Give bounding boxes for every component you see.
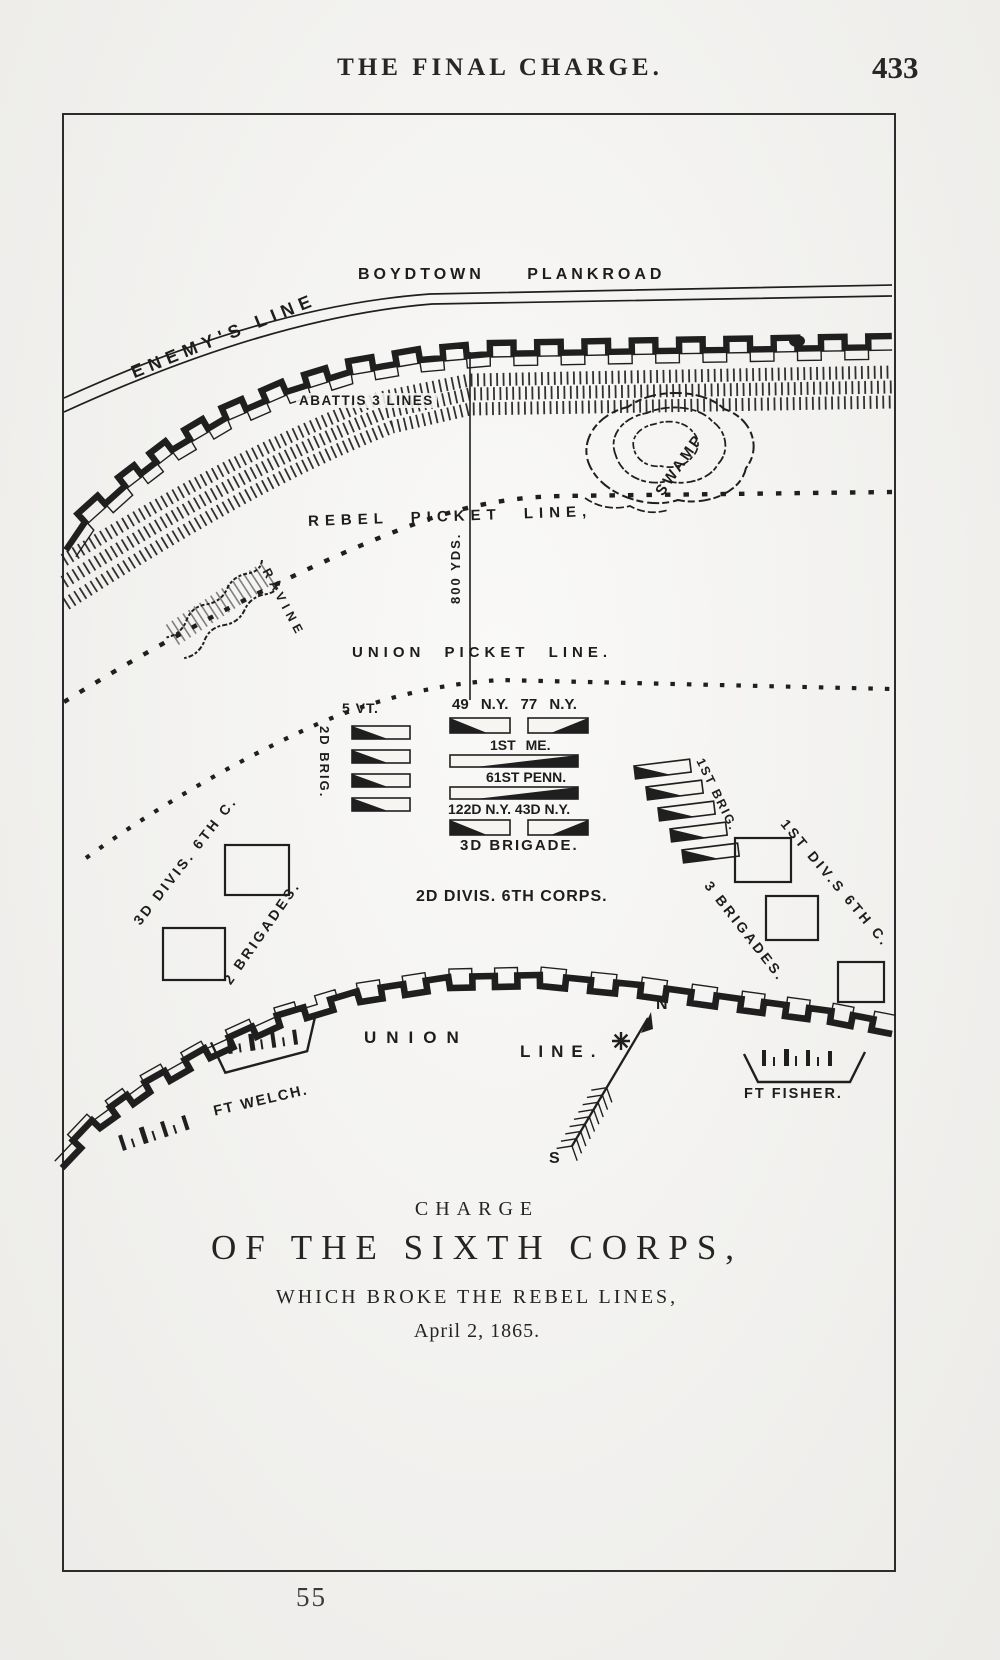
fort-fisher-symbol [744,1049,865,1082]
fort-welch-symbol-tick [260,1039,263,1049]
map-title-line4: April 2, 1865. [62,1320,892,1343]
union-picket-line-label: UNION PICKET LINE. [352,644,612,661]
union-line-label-union: UNION [364,1028,469,1048]
plate-number: 55 [296,1582,327,1613]
map-title-line3: WHICH BROKE THE REBEL LINES, [62,1286,892,1309]
unit-bar [634,759,691,779]
unit-label-61st-penn: 61ST PENN. [486,769,566,785]
battery-symbol-tick [160,1121,169,1137]
unit-bar [646,780,703,800]
compass-feather [581,1131,586,1146]
battery-symbol [118,1113,190,1151]
unit-label-2d-division: 2D DIVIS. 6TH CORPS. [416,888,608,906]
brigade-square-1 [225,845,289,895]
unit-bar [352,726,410,739]
battery-symbol-tick [118,1134,127,1150]
unit-bar [450,787,578,799]
unit-bar [352,774,410,787]
fort-fisher-symbol-tick [773,1057,775,1066]
compass-feather [557,1146,572,1148]
brigade-square-3 [735,838,791,882]
unit-label-2d-brig: 2D BRIG. [317,726,332,798]
unit-bar [528,820,588,835]
compass-arrowhead [641,1012,653,1033]
unit-label-122d-43d-ny: 122D N.Y. 43D N.Y. [448,801,570,817]
unit-bar [450,718,510,733]
fort-welch-symbol-tick [270,1032,276,1048]
unit-label-1st-me: 1ST ME. [490,737,550,753]
battery-symbol-tick [173,1125,178,1134]
book-page: { "page": { "header": "THE FINAL CHARGE.… [0,0,1000,1660]
battery-symbol-tick [131,1138,136,1147]
brigade-square-4 [766,896,818,940]
unit-bar [352,798,410,811]
compass-feather [576,1139,581,1154]
compass-feather [572,1146,577,1161]
unit-label-3d-brigade: 3D BRIGADE. [460,837,579,854]
fort-fisher-label: FT FISHER. [744,1086,843,1102]
fort-fisher-symbol-tick [806,1050,810,1066]
fort-fisher-symbol-tick [828,1051,832,1066]
fort-fisher-symbol-tick [817,1057,819,1066]
swamp-scribble-4 [585,498,668,512]
compass-north-label: N [656,996,668,1014]
map-title-line2: OF THE SIXTH CORPS, [62,1228,892,1268]
brigade-square-2 [163,928,225,980]
distance-label: 800 YDS. [448,533,463,604]
fort-welch-symbol-tick [238,1043,241,1052]
fort-fisher-symbol-tick [762,1050,766,1066]
unit-bar [450,755,578,767]
compass-feather [607,1088,612,1103]
unit-bar [682,843,739,863]
battery-symbol-tick [139,1126,149,1144]
unit-bar [658,801,715,821]
union-line-label-line: LINE. [520,1042,603,1062]
brigade-square-5 [838,962,884,1002]
abattis-label: ABATTIS 3 LINES [296,393,437,408]
compass-feather [589,1117,594,1132]
unit-bar [352,750,410,763]
compass-shaft [572,1018,648,1146]
fort-fisher-symbol-tick [795,1056,797,1066]
road-label: BOYDTOWN PLANKROAD [358,266,665,284]
map-linework [0,0,1000,1660]
fort-welch-symbol [209,1016,321,1074]
unit-bar [450,820,510,835]
fort-welch-symbol-tick [282,1037,285,1046]
abattis-row-2 [64,387,892,582]
enemy-line-blob [789,335,805,347]
unit-label-49ny-77ny: 49 N.Y. 77 N.Y. [452,696,577,713]
compass-feather [598,1102,603,1117]
fort-welch-symbol-tick [292,1029,298,1044]
unit-bar [670,822,727,842]
compass-feather [602,1095,607,1110]
compass-feather [594,1110,599,1125]
unit-label-5vt: 5 VT. [342,700,379,716]
compass-south-label: S [549,1150,560,1168]
unit-bar [528,718,588,733]
compass-feather [585,1124,590,1139]
battery-symbol-tick [151,1131,156,1141]
battery-symbol-tick [181,1115,189,1131]
fort-fisher-symbol-tick [784,1049,789,1066]
map-title-line1: CHARGE [62,1198,892,1221]
fort-welch-symbol-bracket [209,1016,321,1074]
union-line-outline [55,967,896,1161]
